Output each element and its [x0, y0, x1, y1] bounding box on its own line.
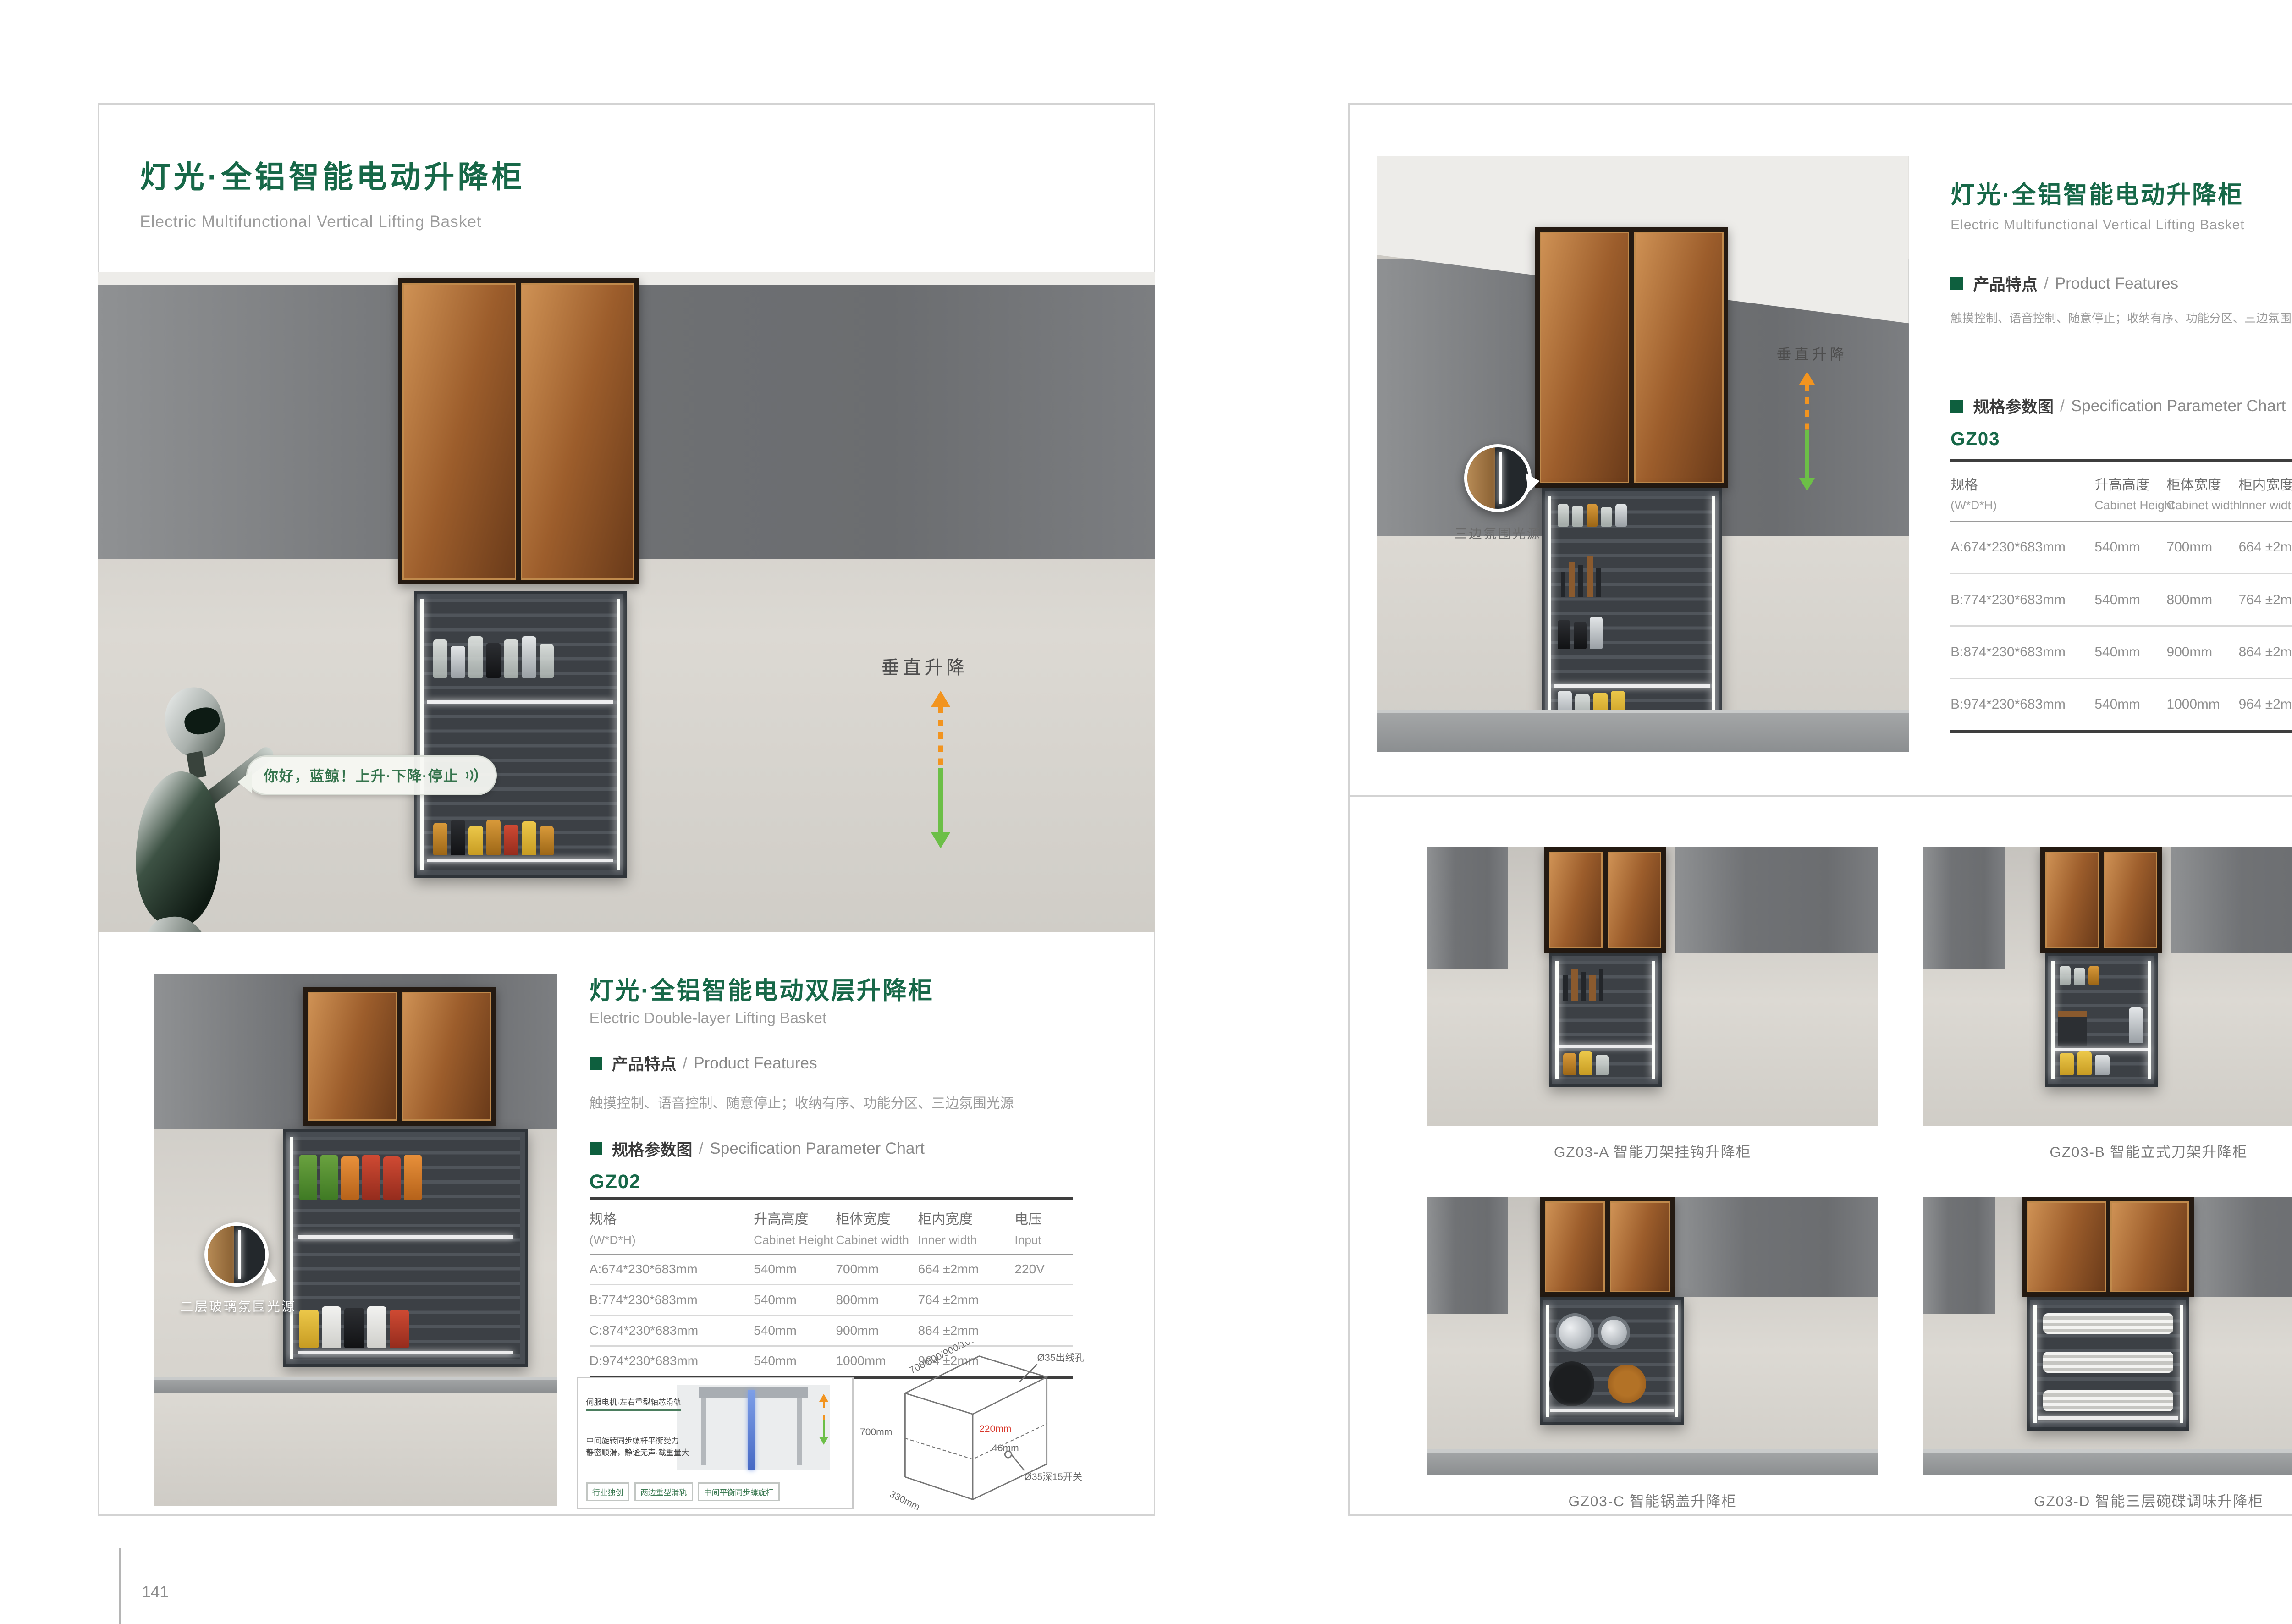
arrow-dashed-line: [823, 1402, 825, 1420]
gallery-photo-a: [1427, 847, 1878, 1126]
features-text: 触摸控制、语音控制、随意停止；收纳有序、功能分区、三边氛围光源: [1950, 309, 2292, 326]
grinder: [1574, 622, 1587, 649]
magnifier-callout: [204, 1222, 269, 1287]
juice-carton: [383, 1156, 401, 1200]
gallery-item-a: GZ03-A 智能刀架挂钩升降柜: [1427, 847, 1878, 1162]
jar: [1615, 504, 1627, 526]
cabinet-door-right: [2110, 1201, 2189, 1292]
gallery-caption: GZ03-B 智能立式刀架升降柜: [1923, 1140, 2292, 1162]
led-strip: [2148, 961, 2151, 1079]
cabinet-door-left: [308, 992, 397, 1121]
countertop: [1427, 1449, 1878, 1475]
hanging-utensils: [1563, 969, 1647, 1001]
bronze-glass-cabinet: [303, 987, 496, 1126]
utensil: [1596, 568, 1601, 597]
badge: 行业独创: [586, 1482, 630, 1502]
hero-photo-gz02: 你好，蓝鲸！上升·下降·停止 垂直升降: [98, 272, 1155, 932]
jar: [540, 826, 554, 855]
hero-photo-gz03: 三边氛围光源 垂直升降: [1377, 156, 1909, 752]
col-header: 柜内宽度Inner width: [2239, 473, 2292, 513]
jar: [433, 823, 448, 855]
upper-cabinets: [1427, 1197, 1508, 1314]
jar: [1579, 1051, 1592, 1076]
steel-canister: [2095, 1055, 2110, 1076]
pasta-jar: [2077, 1051, 2092, 1076]
voice-command-text: 你好，蓝鲸！上升·下降·停止: [264, 765, 458, 786]
base-cabinets: [154, 1393, 557, 1506]
gallery-photo-c: [1427, 1197, 1878, 1475]
spec-table-gz03: 规格(W*D*H) 升高高度Cabinet Height 柜体宽度Cabinet…: [1950, 459, 2292, 733]
utensil-row: [1561, 556, 1670, 597]
led-strip: [420, 599, 424, 870]
green-square-bullet: [590, 1142, 602, 1155]
badge: 两边重型滑轨: [634, 1482, 693, 1502]
dim-depth: 220mm: [979, 1424, 1011, 1434]
page-subtitle: Electric Multifunctional Vertical Liftin…: [140, 213, 525, 231]
cabinet-door-right: [521, 283, 634, 580]
knife-block: [2058, 1011, 2087, 1046]
upper-cabinets: [1675, 847, 1878, 953]
led-strip: [290, 1137, 293, 1359]
led-strip: [1712, 496, 1715, 725]
glass-shelf: [298, 1351, 513, 1354]
carton-row-bottom: [299, 1306, 512, 1348]
table-row: B:874*230*683mm 540mm 900mm 864 ±2mm: [1950, 627, 2292, 679]
plate-stack: [2043, 1313, 2173, 1334]
countertop: [1923, 1449, 2292, 1475]
cabinet-door-right: [1610, 1201, 1670, 1292]
section-title: 灯光·全铝智能电动双层升降柜: [590, 971, 934, 1006]
gallery-item-d: GZ03-D 智能三层碗碟调味升降柜: [1923, 1197, 2292, 1511]
led-strip: [1555, 961, 1559, 1079]
page-title-block: 灯光·全铝智能电动升降柜 Electric Multifunctional Ve…: [140, 153, 525, 231]
knife: [1581, 972, 1586, 1001]
led-strip: [2051, 961, 2055, 1079]
pasta-jar-row: [2060, 1051, 2143, 1076]
photo-callout-label: 二层玻璃氛围光源: [154, 1296, 322, 1315]
upper-cabinets: [1427, 847, 1508, 969]
wood-panel-detail: [208, 1226, 234, 1284]
jar: [486, 820, 501, 855]
knife-hook-basket: [1549, 953, 1662, 1087]
cabinet-door-right: [1608, 852, 1661, 948]
table-row: B:774*230*683mm 540mm 800mm 764 ±2mm: [590, 1285, 1073, 1316]
glass-shelf: [1557, 1045, 1653, 1048]
bronze-glass-cabinet: [1544, 847, 1666, 953]
voice-wave-icon: [465, 766, 479, 784]
jar: [468, 826, 483, 855]
glass-shelf: [298, 1235, 513, 1239]
juice-carton: [404, 1155, 422, 1200]
gallery-item-c: GZ03-C 智能锅盖升降柜: [1427, 1197, 1878, 1511]
mechanism-diagram: 伺服电机·左右重型轴芯滑轨 中间旋转同步螺杆平衡受力 静密顺滑，静谧无声·载重量…: [577, 1377, 854, 1509]
dim-bottom: 330mm: [888, 1489, 921, 1512]
vertical-lift-label: 垂直升降: [881, 652, 968, 679]
col-header: 规格(W*D*H): [1950, 473, 2094, 513]
arrow-down-icon: [819, 1437, 828, 1445]
led-strip: [1675, 1305, 1678, 1417]
col-header: 柜体宽度Cabinet width: [2167, 473, 2239, 513]
page-title: 灯光·全铝智能电动升降柜: [140, 153, 525, 197]
juice-carton: [341, 1156, 359, 1200]
snack-box: [344, 1308, 364, 1348]
arrow-up-icon: [1799, 372, 1815, 385]
dim-height: 700mm: [860, 1427, 892, 1437]
dim-top: 700/800/900/1000mm: [908, 1342, 996, 1376]
snack-box: [322, 1306, 341, 1348]
pot-lid: [1598, 1316, 1630, 1349]
table-header-row: 规格(W*D*H) 升高高度Cabinet Height 柜体宽度Cabinet…: [1950, 462, 2292, 522]
dish-rack-basket: [2027, 1297, 2189, 1431]
col-header: 电压Input: [1014, 1208, 1073, 1247]
upper-cabinets: [1923, 1197, 1995, 1314]
grinder: [1590, 617, 1603, 649]
jar: [1563, 1053, 1576, 1075]
pot-lid-basket: [1540, 1297, 1684, 1425]
utensil: [1569, 562, 1575, 597]
pasta-jar: [2060, 1053, 2074, 1075]
model-code: GZ03: [1950, 428, 2000, 450]
spec-chart-heading: 规格参数图 / Specification Parameter Chart: [590, 1137, 925, 1161]
jar: [486, 643, 501, 678]
spatula: [1571, 969, 1578, 1001]
jar: [540, 644, 554, 678]
product-features-heading: 产品特点 / Product Features: [590, 1051, 817, 1075]
jar: [433, 639, 448, 678]
snack-box: [390, 1310, 409, 1348]
dim-46: 46mm: [992, 1443, 1019, 1453]
jar: [2088, 966, 2100, 985]
mechanism-label-bottom: 中间旋转同步螺杆平衡受力 静密顺滑，静谧无声·载重量大: [586, 1435, 689, 1460]
jar: [451, 820, 465, 855]
led-strip: [2180, 1305, 2183, 1423]
juice-carton: [320, 1155, 338, 1200]
knife: [1563, 975, 1568, 1001]
black-pan: [1549, 1361, 1594, 1406]
cabinet-door-left: [1549, 852, 1603, 948]
ladle: [1589, 975, 1595, 1001]
badge: 中间平衡同步螺旋杆: [698, 1482, 780, 1502]
mechanism-label-top: 伺服电机·左右重型轴芯滑轨: [586, 1397, 682, 1411]
upper-cabinets: [2171, 847, 2292, 953]
table-row: A:674*230*683mm 540mm 700mm 664 ±2mm 220…: [590, 1255, 1073, 1286]
arrow-solid-line: [1805, 430, 1809, 478]
jar: [468, 636, 483, 678]
product-features-heading: 产品特点 / Product Features: [1950, 272, 2178, 295]
slide-rail-right: [797, 1398, 802, 1465]
juice-carton: [362, 1155, 380, 1200]
jar: [2060, 966, 2071, 985]
dim-hole: Ø35出线孔: [1037, 1352, 1085, 1363]
plate-stack: [2043, 1390, 2173, 1411]
gallery-photo-b: [1923, 847, 2292, 1126]
jar-row-bottom: [1563, 1051, 1647, 1076]
cabinet-door-left: [1540, 232, 1629, 483]
col-header: 柜体宽度Cabinet width: [836, 1208, 918, 1247]
magnifier-tail: [1526, 470, 1550, 492]
gallery-item-b: GZ03-B 智能立式刀架升降柜: [1923, 847, 2292, 1162]
glass-shelf: [1554, 684, 1710, 688]
utensil: [1561, 572, 1566, 597]
table-row: B:974*230*683mm 540mm 1000mm 964 ±2mm: [1950, 679, 2292, 730]
upper-cabinets: [1923, 847, 2004, 969]
table-header-row: 规格(W*D*H) 升高高度Cabinet Height 柜体宽度Cabinet…: [590, 1200, 1073, 1255]
double-layer-basket: [283, 1129, 528, 1367]
page-number-tick: [119, 1548, 121, 1624]
lift-direction-arrows: [1799, 372, 1815, 491]
bronze-glass-cabinet: [398, 278, 639, 584]
arrow-solid-line: [938, 768, 943, 833]
robot-visor: [182, 704, 223, 738]
lifting-basket: [414, 591, 627, 878]
juice-carton: [299, 1155, 317, 1200]
jar-row-bottom: [433, 820, 607, 855]
bronze-glass-cabinet: [2040, 847, 2162, 953]
col-header: 规格(W*D*H): [590, 1208, 754, 1247]
utensil: [1587, 556, 1593, 597]
catalog-spread: 灯光·全铝智能电动升降柜 Electric Multifunctional Ve…: [0, 0, 2292, 1624]
col-header: 升高高度Cabinet Height: [2094, 473, 2166, 513]
arrow-solid-line: [823, 1420, 825, 1437]
pot-lid: [1556, 1313, 1594, 1352]
green-square-bullet: [1950, 277, 1963, 290]
green-square-bullet: [1950, 400, 1963, 413]
page-title: 灯光·全铝智能电动升降柜: [1950, 176, 2243, 210]
mechanism-badges: 行业独创 两边重型滑轨 中间平衡同步螺旋杆: [586, 1482, 844, 1502]
jar: [504, 825, 518, 855]
gallery-caption: GZ03-D 智能三层碗碟调味升降柜: [1923, 1490, 2292, 1511]
arrow-dashed-line: [938, 707, 943, 768]
bronze-glass-cabinet: [2022, 1197, 2194, 1297]
cabinet-door-left: [402, 283, 516, 580]
page-142: 三边氛围光源 垂直升降 灯光·全铝智能电动升降柜 Electric Multif…: [1348, 103, 2292, 1516]
upper-cabinets: [2194, 1197, 2292, 1297]
col-header: 升高高度Cabinet Height: [754, 1208, 836, 1247]
cabinet-door-right: [2104, 852, 2157, 948]
led-strip: [1652, 961, 1655, 1079]
section-divider: [1350, 795, 2292, 797]
spec-chart-heading: 规格参数图 / Specification Parameter Chart: [1950, 394, 2286, 418]
slide-rail-left: [701, 1398, 706, 1465]
cabinet-door-right: [402, 992, 491, 1121]
jar: [522, 636, 536, 678]
col-header: 柜内宽度Inner width: [918, 1208, 1015, 1247]
mini-lift-arrows: [819, 1394, 828, 1445]
vertical-knife-basket: [2045, 953, 2158, 1087]
arrow-down-icon: [931, 832, 950, 848]
jar: [1587, 504, 1598, 526]
model-code: GZ02: [590, 1171, 641, 1193]
jar: [2074, 968, 2085, 985]
cabinet-door-left: [1545, 1201, 1605, 1292]
led-strip: [2033, 1305, 2037, 1423]
plate-stack: [2043, 1352, 2173, 1373]
utensil: [1578, 565, 1583, 597]
table-row: B:774*230*683mm 540mm 800mm 764 ±2mm: [1950, 574, 2292, 627]
voice-command-bubble: 你好，蓝鲸！上升·下降·停止: [246, 755, 497, 795]
jar: [1601, 507, 1612, 526]
dim-switch: Ø35深15开关: [1025, 1471, 1083, 1482]
cabinet-door-left: [2045, 852, 2099, 948]
table-row: A:674*230*683mm 540mm 700mm 664 ±2mm 220…: [1950, 522, 2292, 574]
glass-shelf: [427, 859, 613, 862]
snack-box: [367, 1306, 386, 1348]
jar: [1596, 1055, 1609, 1076]
carton-row-top: [299, 1155, 512, 1200]
led-detail: [1499, 452, 1502, 504]
amber-pan: [1608, 1365, 1646, 1403]
gallery-caption: GZ03-C 智能锅盖升降柜: [1427, 1490, 1878, 1511]
grinder: [1558, 620, 1570, 649]
green-square-bullet: [590, 1057, 602, 1070]
led-detail: [238, 1230, 241, 1279]
bronze-glass-cabinet: [1540, 1197, 1675, 1297]
arrow-up-icon: [819, 1394, 828, 1402]
gallery-caption: GZ03-A 智能刀架挂钩升降柜: [1427, 1140, 1878, 1162]
glass-shelf: [2054, 1048, 2149, 1051]
arrow-dashed-line: [1805, 385, 1809, 429]
led-strip: [617, 599, 620, 870]
page-141: 灯光·全铝智能电动升降柜 Electric Multifunctional Ve…: [98, 103, 1155, 1516]
page-number-left: 141: [142, 1583, 169, 1602]
jar: [522, 821, 536, 855]
gallery-photo-d: [1923, 1197, 2292, 1475]
vertical-lift-label: 垂直升降: [1777, 343, 1848, 364]
canister-row: [2129, 1007, 2143, 1043]
glass-shelf: [1550, 1409, 1674, 1412]
upper-cabinets: [1675, 1197, 1878, 1297]
countertop: [1377, 710, 1909, 752]
glass-shelf: [427, 700, 613, 704]
spice-jar-row: [2060, 966, 2143, 985]
cabinet-door-left: [2027, 1201, 2105, 1292]
jar: [504, 639, 518, 678]
robot-mascot: [124, 688, 317, 932]
arrow-up-icon: [931, 691, 950, 707]
led-strip: [1546, 1305, 1549, 1417]
product-photo-gz02: 二层玻璃氛围光源: [154, 974, 557, 1506]
bronze-glass-cabinet: [1535, 227, 1729, 488]
countertop: [154, 1377, 557, 1393]
section-subtitle: Electric Double-layer Lifting Basket: [590, 1010, 827, 1027]
jar: [451, 646, 465, 678]
knife: [1599, 969, 1604, 1001]
steel-canister: [2129, 1007, 2143, 1043]
dimension-drawing: 700/800/900/1000mm Ø35出线孔 700mm 220mm 46…: [857, 1342, 1108, 1513]
cabinet-door-right: [1634, 232, 1724, 483]
sync-screw-rod: [748, 1390, 755, 1470]
wood-panel-detail: [1467, 447, 1495, 509]
glass-shelf: [2038, 1416, 2178, 1420]
lift-direction-arrows: [931, 691, 950, 848]
photo-callout-label: 三边氛围光源: [1409, 523, 1587, 542]
jar-row-top: [433, 636, 607, 678]
arrow-down-icon: [1799, 478, 1815, 491]
page-subtitle: Electric Multifunctional Vertical Liftin…: [1950, 217, 2244, 233]
grinder-row: [1558, 617, 1706, 649]
magnifier-callout: [1464, 444, 1532, 512]
features-text: 触摸控制、语音控制、随意停止；收纳有序、功能分区、三边氛围光源: [590, 1092, 1014, 1112]
